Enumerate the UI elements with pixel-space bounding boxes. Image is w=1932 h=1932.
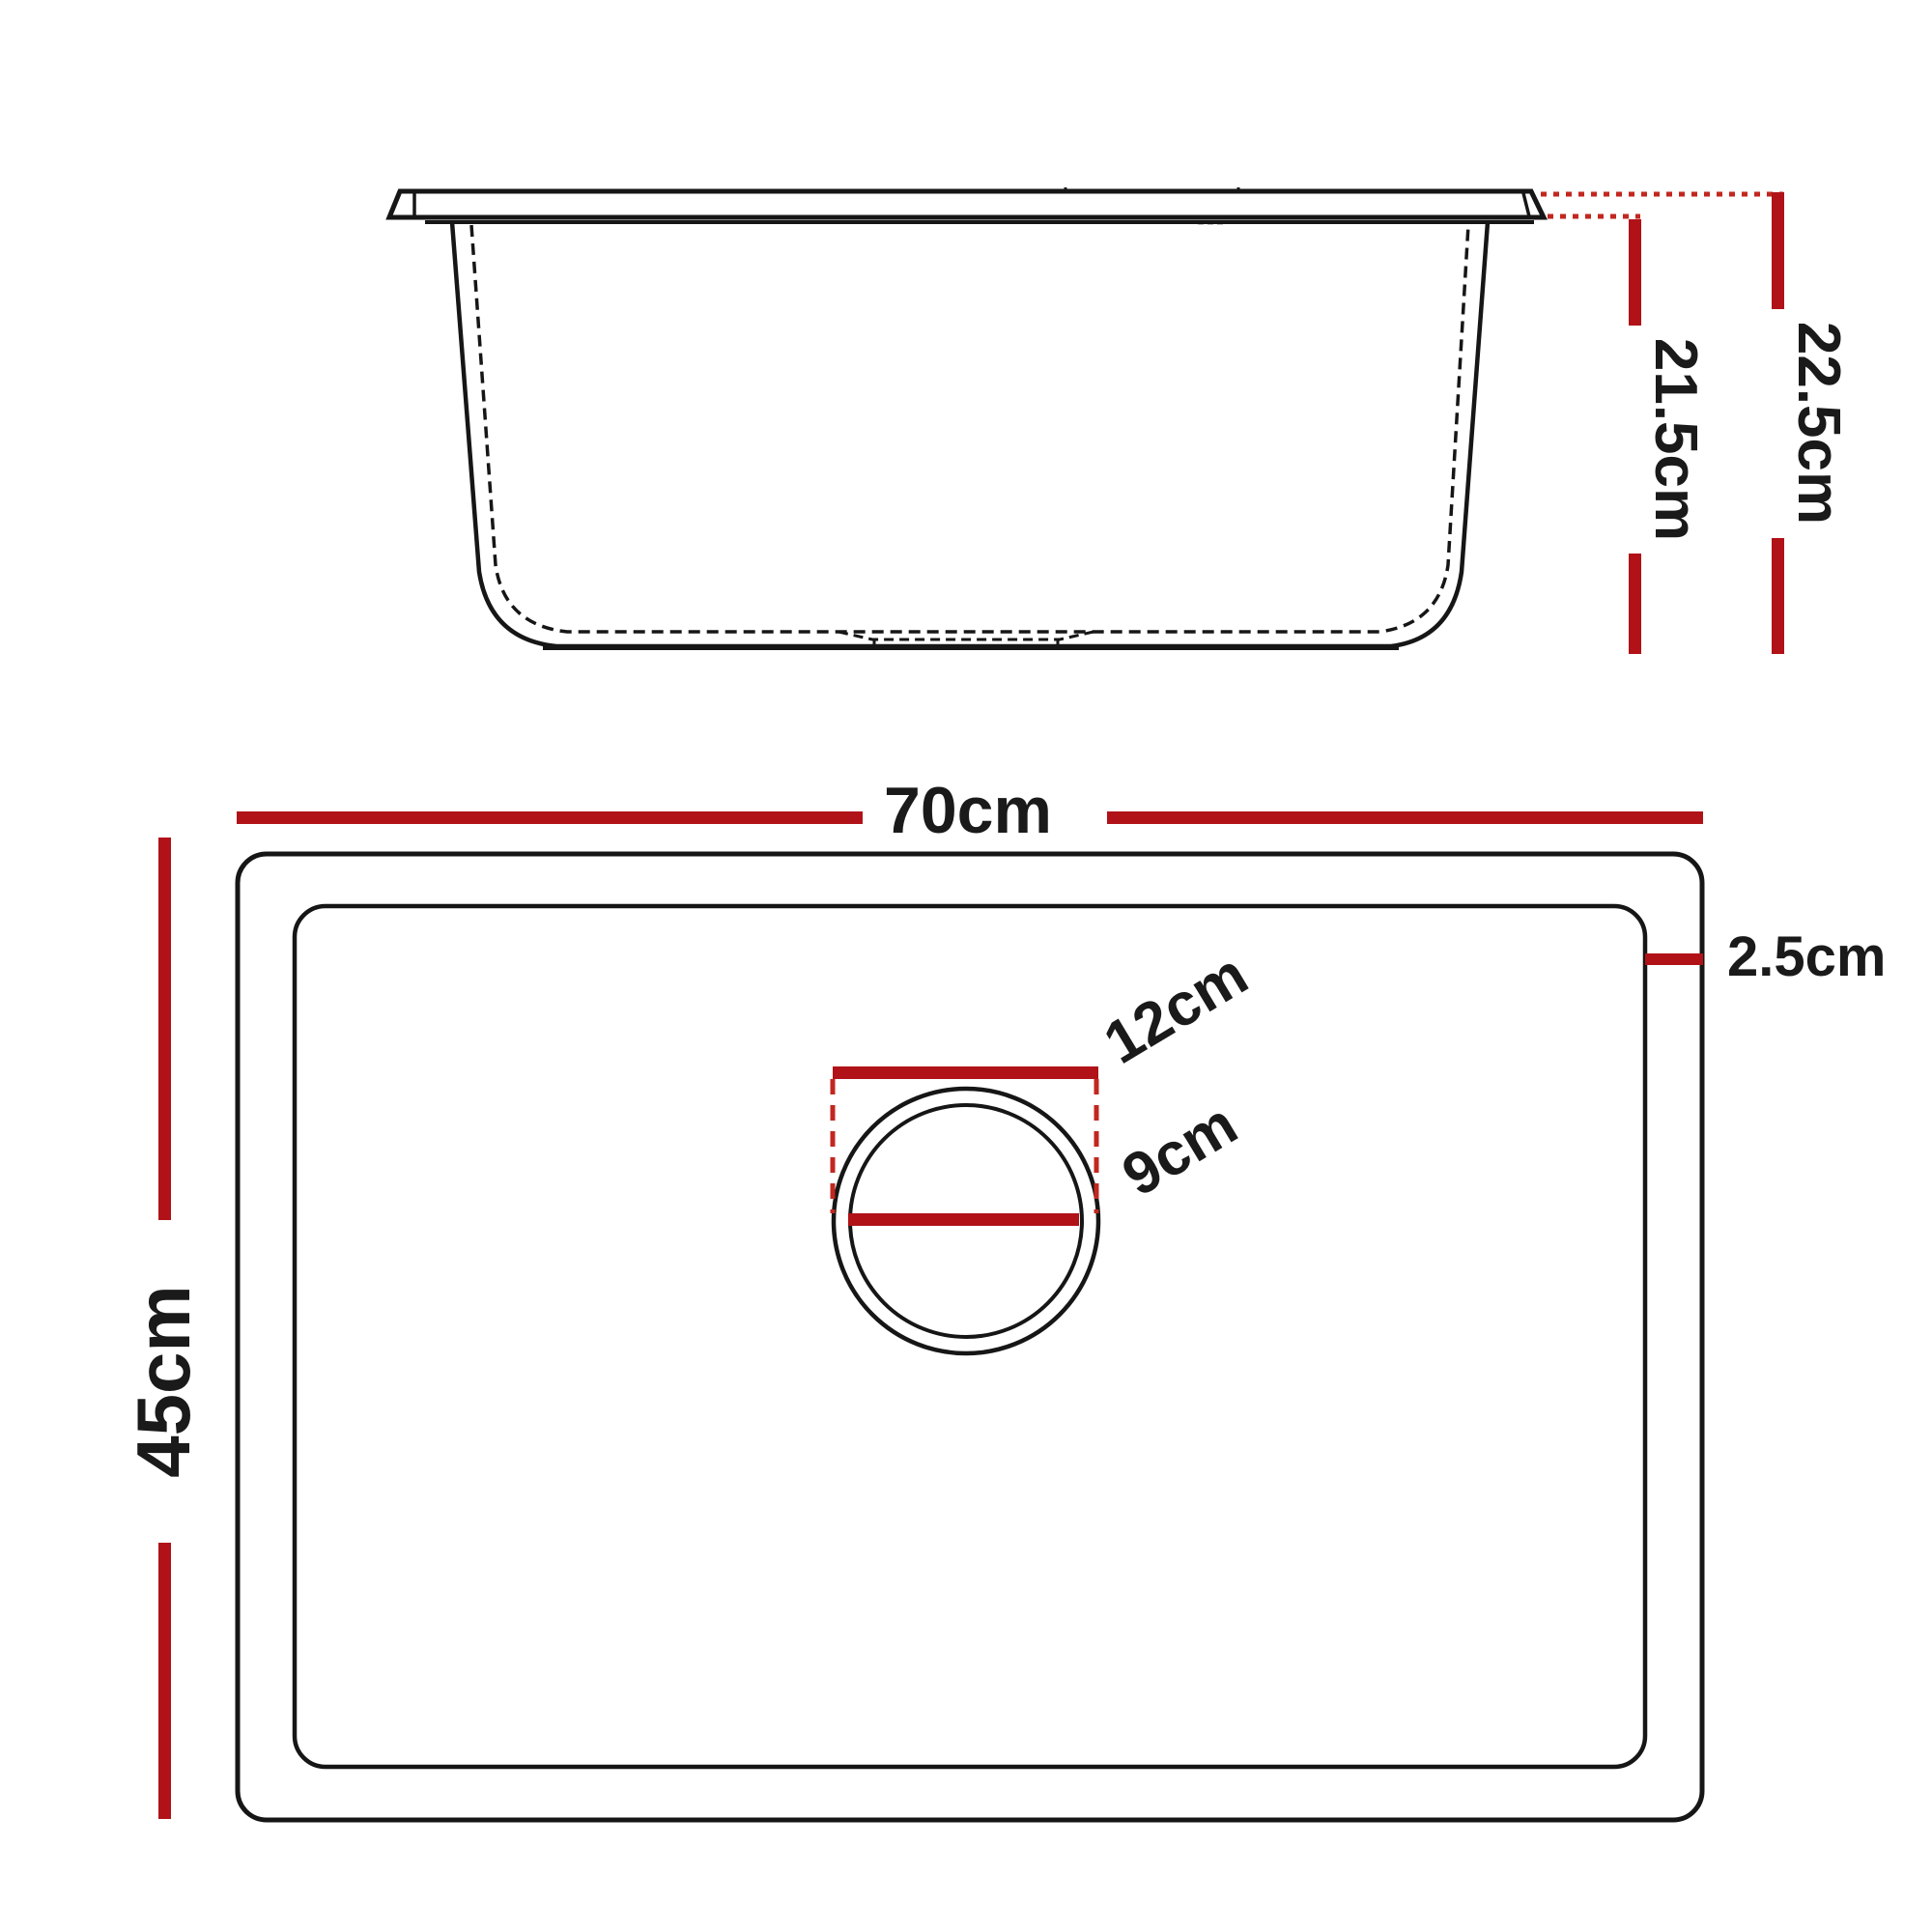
- dim-bar-rim-width: [1645, 953, 1703, 965]
- dim-bar-inner-height-top: [1629, 219, 1641, 326]
- dim-bar-drain-recess: [833, 1066, 1098, 1079]
- dim-bar-width-right: [1107, 811, 1703, 824]
- dim-bar-inner-height-bottom: [1629, 554, 1641, 654]
- dim-bar-width-left: [237, 811, 863, 824]
- dim-label-drain-recess: 12cm: [1094, 941, 1259, 1077]
- side-view-drawing: [389, 187, 1544, 648]
- dim-label-overall-height: 22.5cm: [1785, 322, 1852, 525]
- plan-view-drawing: [238, 854, 1702, 1820]
- side-view-flange-right-inner-edge: [1523, 193, 1529, 216]
- diagram-svg: 21.5cm 22.5cm 70cm: [0, 0, 1932, 1932]
- dim-label-drain-hole: 9cm: [1111, 1091, 1248, 1209]
- dim-bar-overall-height-bottom: [1772, 538, 1784, 654]
- dim-label-inner-height: 21.5cm: [1642, 338, 1709, 541]
- dim-bar-overall-height-top: [1772, 192, 1784, 309]
- side-view-leader-lines: [1541, 194, 1783, 216]
- side-view-flange-outline: [389, 191, 1544, 217]
- dim-label-overall-width: 70cm: [884, 774, 1052, 847]
- dim-bar-depth-bottom: [158, 1543, 171, 1819]
- sink-dimensions-diagram: 21.5cm 22.5cm 70cm: [0, 0, 1932, 1932]
- side-view-bowl-outer-wall: [452, 222, 1488, 646]
- side-view-bowl-inner-wall-dashed: [471, 225, 1468, 632]
- dim-bar-depth-top: [158, 838, 171, 1220]
- dim-label-overall-depth: 45cm: [121, 1285, 206, 1478]
- plan-view-dimension-bars: [158, 811, 1703, 1819]
- dim-bar-drain-hole: [848, 1213, 1079, 1226]
- dim-label-rim-width: 2.5cm: [1727, 925, 1886, 988]
